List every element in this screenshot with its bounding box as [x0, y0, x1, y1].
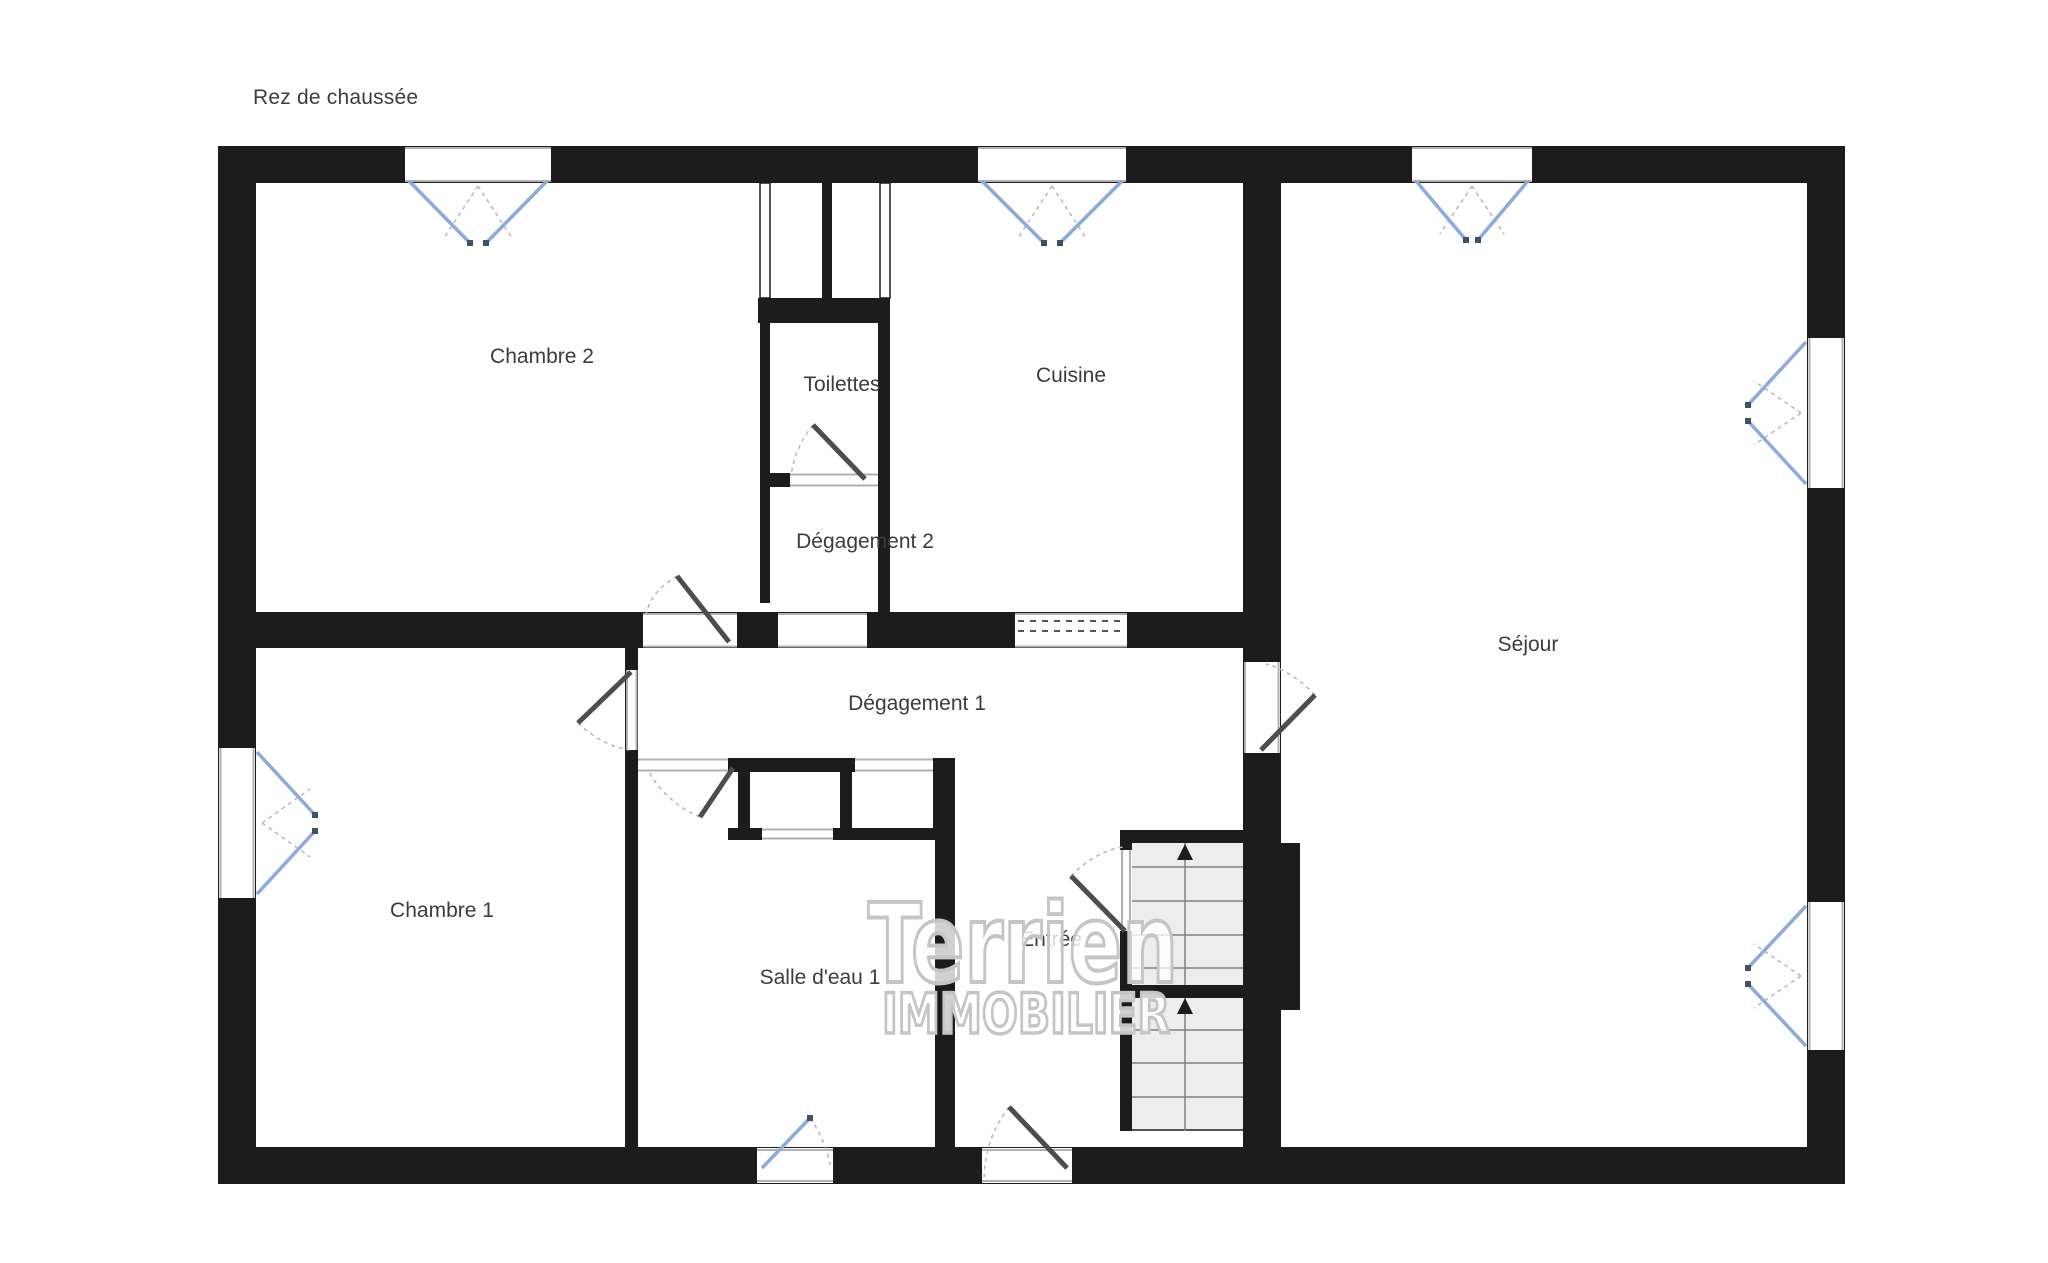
- tip-dot: [1745, 402, 1751, 408]
- opening-window-sejour-r2: [1808, 902, 1844, 1050]
- room-label-salle-deau-1: Salle d'eau 1: [760, 966, 881, 989]
- wall-toilettes-right: [878, 323, 890, 613]
- casement-sejourtop-left: [1416, 181, 1466, 240]
- casement-sejr1-top: [1748, 342, 1806, 405]
- tip-dot: [1745, 981, 1751, 987]
- window-dash-cuisine: [1018, 186, 1052, 238]
- tip-dot: [312, 828, 318, 834]
- opening-window-chambre1: [219, 748, 255, 898]
- casement-chambre1-bottom: [257, 831, 315, 894]
- wall-closet-divider: [840, 762, 852, 840]
- door-arc-toilettes: [791, 425, 813, 476]
- watermark-immobilier: IMMOBILIER: [882, 982, 1170, 1046]
- wall-toilettes-doorjamb: [760, 473, 790, 487]
- opening-passage-degagement2: [778, 613, 867, 647]
- door-leaf-toilettes: [813, 425, 865, 479]
- casement-sejr2-top: [1748, 906, 1806, 968]
- casement-chambre1-top: [257, 752, 315, 815]
- wall-stairs-top: [1120, 830, 1243, 843]
- floor-plan-canvas: Chambre 2ToilettesCuisineDégagement 2Dég…: [0, 0, 2048, 1263]
- opening-door-entree: [982, 1148, 1072, 1183]
- casement-chambre2-right: [486, 181, 547, 243]
- casement-cuisine-left: [982, 181, 1044, 243]
- window-dash-chambre1: [262, 789, 310, 823]
- door-arc-salledeau: [649, 772, 700, 817]
- window-dash-cuisine: [1052, 186, 1086, 238]
- floor-plan: Rez de chaussée Chambre 2ToilettesCuisin…: [0, 0, 2048, 1263]
- tip-dot: [483, 240, 489, 246]
- tip-dot: [1463, 237, 1469, 243]
- tip-dot: [467, 240, 473, 246]
- casement-sejr1-bottom: [1748, 421, 1806, 484]
- wall-closet-left: [738, 772, 750, 832]
- wall-pier-sejour: [1262, 843, 1300, 1010]
- tip-dot: [1041, 240, 1047, 246]
- room-label-toilettes: Toilettes: [803, 373, 880, 396]
- opening-window-cuisine: [978, 147, 1126, 182]
- window-dash-sejr2: [1754, 944, 1801, 976]
- shaft-left-wall: [760, 183, 770, 298]
- window-dash-sejr2: [1754, 976, 1801, 1008]
- door-leaf-chambre1: [578, 672, 631, 723]
- door-arc-stairs: [1071, 847, 1123, 876]
- tip-dot: [312, 812, 318, 818]
- tip-dot: [807, 1115, 813, 1121]
- room-label-degagement-1: Dégagement 1: [848, 692, 986, 715]
- shaft-right-wall: [880, 183, 890, 298]
- casement-cuisine-right: [1060, 181, 1122, 243]
- window-dash-sejr1: [1754, 413, 1801, 445]
- opening-window-salledeau: [757, 1148, 833, 1183]
- tip-dot: [1057, 240, 1063, 246]
- opening-window-sejour-top: [1412, 147, 1532, 182]
- casement-chambre2-left: [409, 181, 470, 243]
- window-dash-chambre1: [262, 823, 310, 857]
- opening-window-sejour-r1: [1808, 338, 1844, 488]
- tip-dot: [1475, 237, 1481, 243]
- opening-door-chambre2: [643, 613, 737, 647]
- door-arc-chambre1: [578, 723, 629, 750]
- room-label-sejour: Séjour: [1498, 633, 1559, 656]
- room-label-degagement-2: Dégagement 2: [796, 530, 934, 553]
- door-leaf-salledeau: [700, 768, 733, 817]
- wall-shaft-divider: [822, 183, 832, 315]
- wall-toilettes-left: [760, 323, 770, 603]
- tip-dot: [1745, 418, 1751, 424]
- wall-closet-top: [728, 758, 855, 772]
- casement-sejr2-bottom: [1748, 984, 1806, 1046]
- window-dash-chambre2: [478, 186, 512, 238]
- tip-dot: [1745, 965, 1751, 971]
- room-label-chambre-2: Chambre 2: [490, 345, 594, 368]
- room-label-cuisine: Cuisine: [1036, 364, 1106, 387]
- casement-sejourtop-right: [1478, 181, 1528, 240]
- room-label-chambre-1: Chambre 1: [390, 899, 494, 922]
- outer-wall-left: [218, 146, 256, 1184]
- window-dash-chambre2: [444, 186, 478, 238]
- window-dash-sejr1: [1754, 381, 1801, 413]
- opening-window-chambre2: [405, 147, 551, 182]
- door-arc-chambre2: [646, 576, 677, 615]
